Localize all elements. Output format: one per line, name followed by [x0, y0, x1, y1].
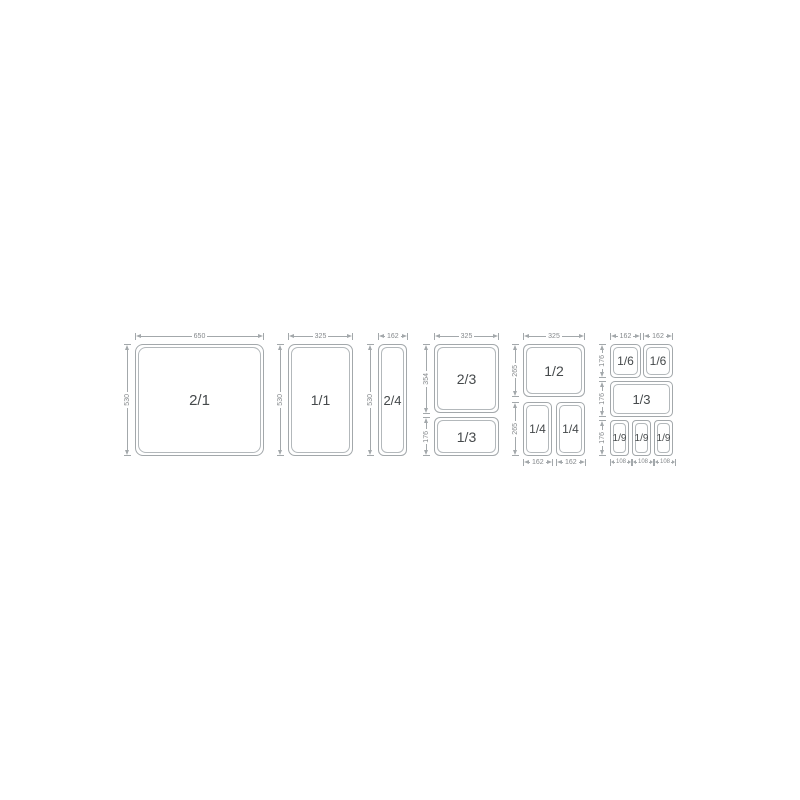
dim-line — [562, 336, 579, 337]
dim-line — [515, 408, 516, 421]
pan-1-3: 1/3 — [434, 417, 499, 456]
dim-line — [294, 336, 313, 337]
pan-1-3-wide: 1/3 — [610, 381, 673, 417]
dim-label: 530 — [124, 392, 131, 408]
pan-1-9-third: 1/9 — [654, 420, 673, 456]
dim-tick — [599, 377, 606, 378]
dim-label: 650 — [192, 333, 208, 340]
dim-tick — [498, 333, 499, 340]
pan-2-1: 2/1 — [135, 344, 264, 456]
dim-tick — [552, 459, 553, 466]
dim-tick — [672, 333, 673, 340]
dim-height-265: 265 — [511, 344, 519, 397]
pan-size-label: 1/6 — [611, 345, 640, 377]
pan-1-9-first: 1/9 — [610, 420, 629, 456]
dim-line — [515, 378, 516, 391]
pan-size-label: 1/3 — [435, 418, 498, 455]
dim-label: 265 — [512, 421, 519, 437]
dim-width-108: 108 — [610, 458, 629, 466]
pan-2-4: 2/4 — [378, 344, 407, 456]
dim-line — [127, 408, 128, 450]
dim-label: 162 — [650, 333, 666, 340]
dim-label: 325 — [546, 333, 562, 340]
pan-size-label: 1/4 — [524, 403, 551, 455]
dim-label: 108 — [659, 459, 671, 465]
pan-1-4-left: 1/4 — [523, 402, 552, 456]
dim-tick — [277, 455, 284, 456]
dim-line — [127, 350, 128, 392]
dim-tick — [512, 396, 519, 397]
dim-tick — [640, 333, 641, 340]
dim-width-162: 162 — [610, 332, 641, 340]
dim-label: 325 — [459, 333, 475, 340]
dim-label: 162 — [618, 333, 634, 340]
dim-tick — [124, 455, 131, 456]
pan-size-label: 1/4 — [557, 403, 584, 455]
pan-1-6-right: 1/6 — [643, 344, 673, 378]
dim-line — [426, 387, 427, 408]
dim-tick — [599, 416, 606, 417]
dim-line — [370, 350, 371, 392]
dim-line — [515, 437, 516, 450]
dim-tick — [512, 455, 519, 456]
pan-1-4-right: 1/4 — [556, 402, 585, 456]
dim-width-108: 108 — [654, 458, 673, 466]
dim-height-530: 530 — [123, 344, 131, 456]
dim-height-176: 176 — [598, 344, 606, 378]
dim-height-530: 530 — [276, 344, 284, 456]
pan-size-label: 1/6 — [644, 345, 672, 377]
dim-height-176: 176 — [598, 420, 606, 456]
dim-height-354: 354 — [422, 344, 430, 414]
pan-size-label: 1/9 — [633, 421, 650, 455]
dim-line — [529, 336, 546, 337]
dim-tick — [407, 333, 408, 340]
pan-size-label: 1/1 — [289, 345, 352, 455]
dim-width-162: 162 — [523, 458, 552, 466]
pan-1-6-left: 1/6 — [610, 344, 641, 378]
pan-size-label: 1/2 — [524, 345, 584, 396]
pan-size-label: 2/3 — [435, 345, 498, 412]
dim-tick — [263, 333, 264, 340]
dim-width-162: 162 — [378, 332, 407, 340]
pan-size-label: 1/9 — [611, 421, 628, 455]
dim-label: 162 — [385, 333, 401, 340]
dim-line — [207, 336, 258, 337]
dim-width-650: 650 — [135, 332, 264, 340]
dim-tick — [585, 459, 586, 466]
pan-size-label: 2/1 — [136, 345, 263, 455]
dim-line — [426, 423, 427, 429]
pan-1-2: 1/2 — [523, 344, 585, 397]
dim-width-108: 108 — [632, 458, 651, 466]
dim-width-162: 162 — [556, 458, 585, 466]
dim-label: 176 — [599, 430, 606, 446]
dim-line — [515, 350, 516, 363]
gastronorm-sizes-diagram: 650 530 2/1 325 530 1/1 162 530 2/4 325 … — [0, 0, 800, 800]
dim-tick — [352, 333, 353, 340]
pan-size-label: 2/4 — [379, 345, 406, 455]
dim-label: 176 — [423, 429, 430, 445]
dim-line — [280, 350, 281, 392]
dim-label: 325 — [313, 333, 329, 340]
dim-label: 530 — [367, 392, 374, 408]
dim-tick — [675, 459, 676, 466]
dim-label: 530 — [277, 392, 284, 408]
pan-1-1: 1/1 — [288, 344, 353, 456]
pan-2-3: 2/3 — [434, 344, 499, 413]
pan-size-label: 1/9 — [655, 421, 672, 455]
dim-width-325: 325 — [434, 332, 499, 340]
dim-line — [426, 350, 427, 371]
dim-tick — [599, 455, 606, 456]
dim-line — [280, 408, 281, 450]
dim-line — [370, 408, 371, 450]
dim-line — [328, 336, 347, 337]
dim-height-176: 176 — [422, 417, 430, 456]
dim-label: 176 — [599, 391, 606, 407]
dim-width-325: 325 — [288, 332, 353, 340]
pan-size-label: 1/3 — [611, 382, 672, 416]
pan-1-9-second: 1/9 — [632, 420, 651, 456]
dim-line — [474, 336, 493, 337]
dim-height-265: 265 — [511, 402, 519, 456]
dim-tick — [367, 455, 374, 456]
dim-tick — [423, 455, 430, 456]
dim-height-176: 176 — [598, 381, 606, 417]
dim-label: 162 — [563, 459, 579, 466]
dim-label: 354 — [423, 371, 430, 387]
dim-label: 265 — [512, 363, 519, 379]
dim-width-162: 162 — [643, 332, 673, 340]
dim-tick — [584, 333, 585, 340]
dim-label: 108 — [637, 459, 649, 465]
dim-tick — [423, 413, 430, 414]
dim-height-530: 530 — [366, 344, 374, 456]
dim-label: 176 — [599, 353, 606, 369]
dim-label: 108 — [615, 459, 627, 465]
dim-width-325: 325 — [523, 332, 585, 340]
dim-line — [440, 336, 459, 337]
dim-label: 162 — [530, 459, 546, 466]
dim-line — [141, 336, 192, 337]
